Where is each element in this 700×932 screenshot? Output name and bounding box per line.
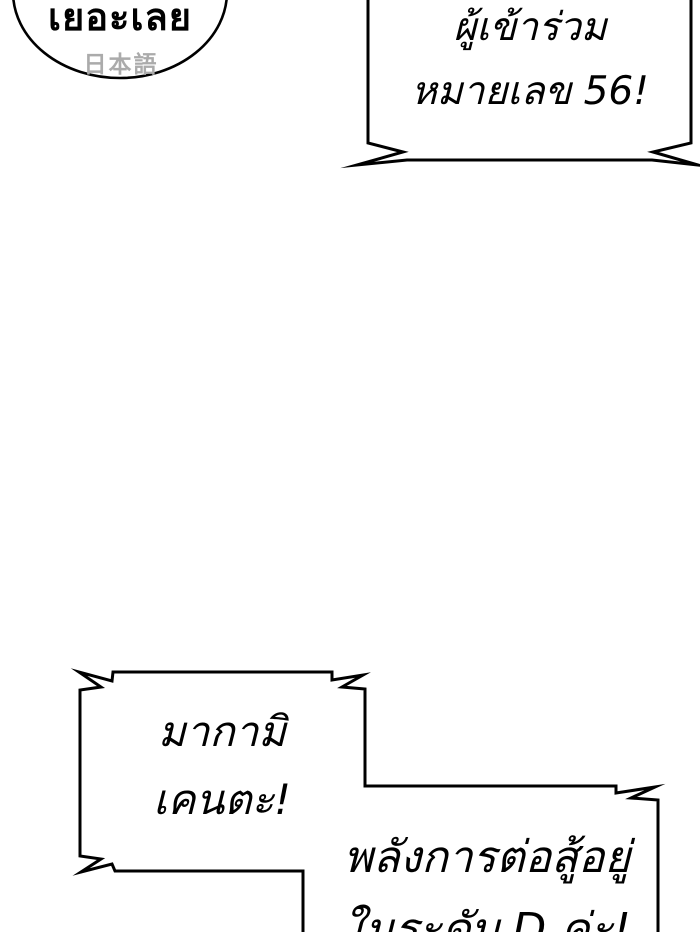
- oval-bubble-subtext: 日本語: [84, 45, 159, 79]
- oval-bubble-text: เยอะเลย: [48, 0, 192, 47]
- bottom-right-bubble-line-1: พลังการต่อสู้อยู่: [343, 822, 631, 894]
- top-right-bubble-line-2: หมายเลข 56!: [411, 60, 649, 124]
- bottom-left-bubble-line-1: มากามิ: [153, 698, 291, 766]
- bottom-left-bubble-text: มากามิ เคนตะ!: [153, 698, 291, 834]
- comic-page: เยอะเลย 日本語 ผู้เข้าร่วม หมายเลข 56! มากา…: [0, 0, 700, 932]
- top-right-bubble-line-1: ผู้เข้าร่วม: [411, 0, 649, 60]
- top-right-bubble-text: ผู้เข้าร่วม หมายเลข 56!: [411, 0, 649, 124]
- speech-bubble-outlines: [0, 0, 700, 932]
- bottom-left-bubble-line-2: เคนตะ!: [153, 766, 291, 834]
- bottom-right-bubble-text: พลังการต่อสู้อยู่ ในระดับ D ค่ะ!: [343, 822, 631, 932]
- bottom-right-bubble-line-2: ในระดับ D ค่ะ!: [343, 894, 631, 932]
